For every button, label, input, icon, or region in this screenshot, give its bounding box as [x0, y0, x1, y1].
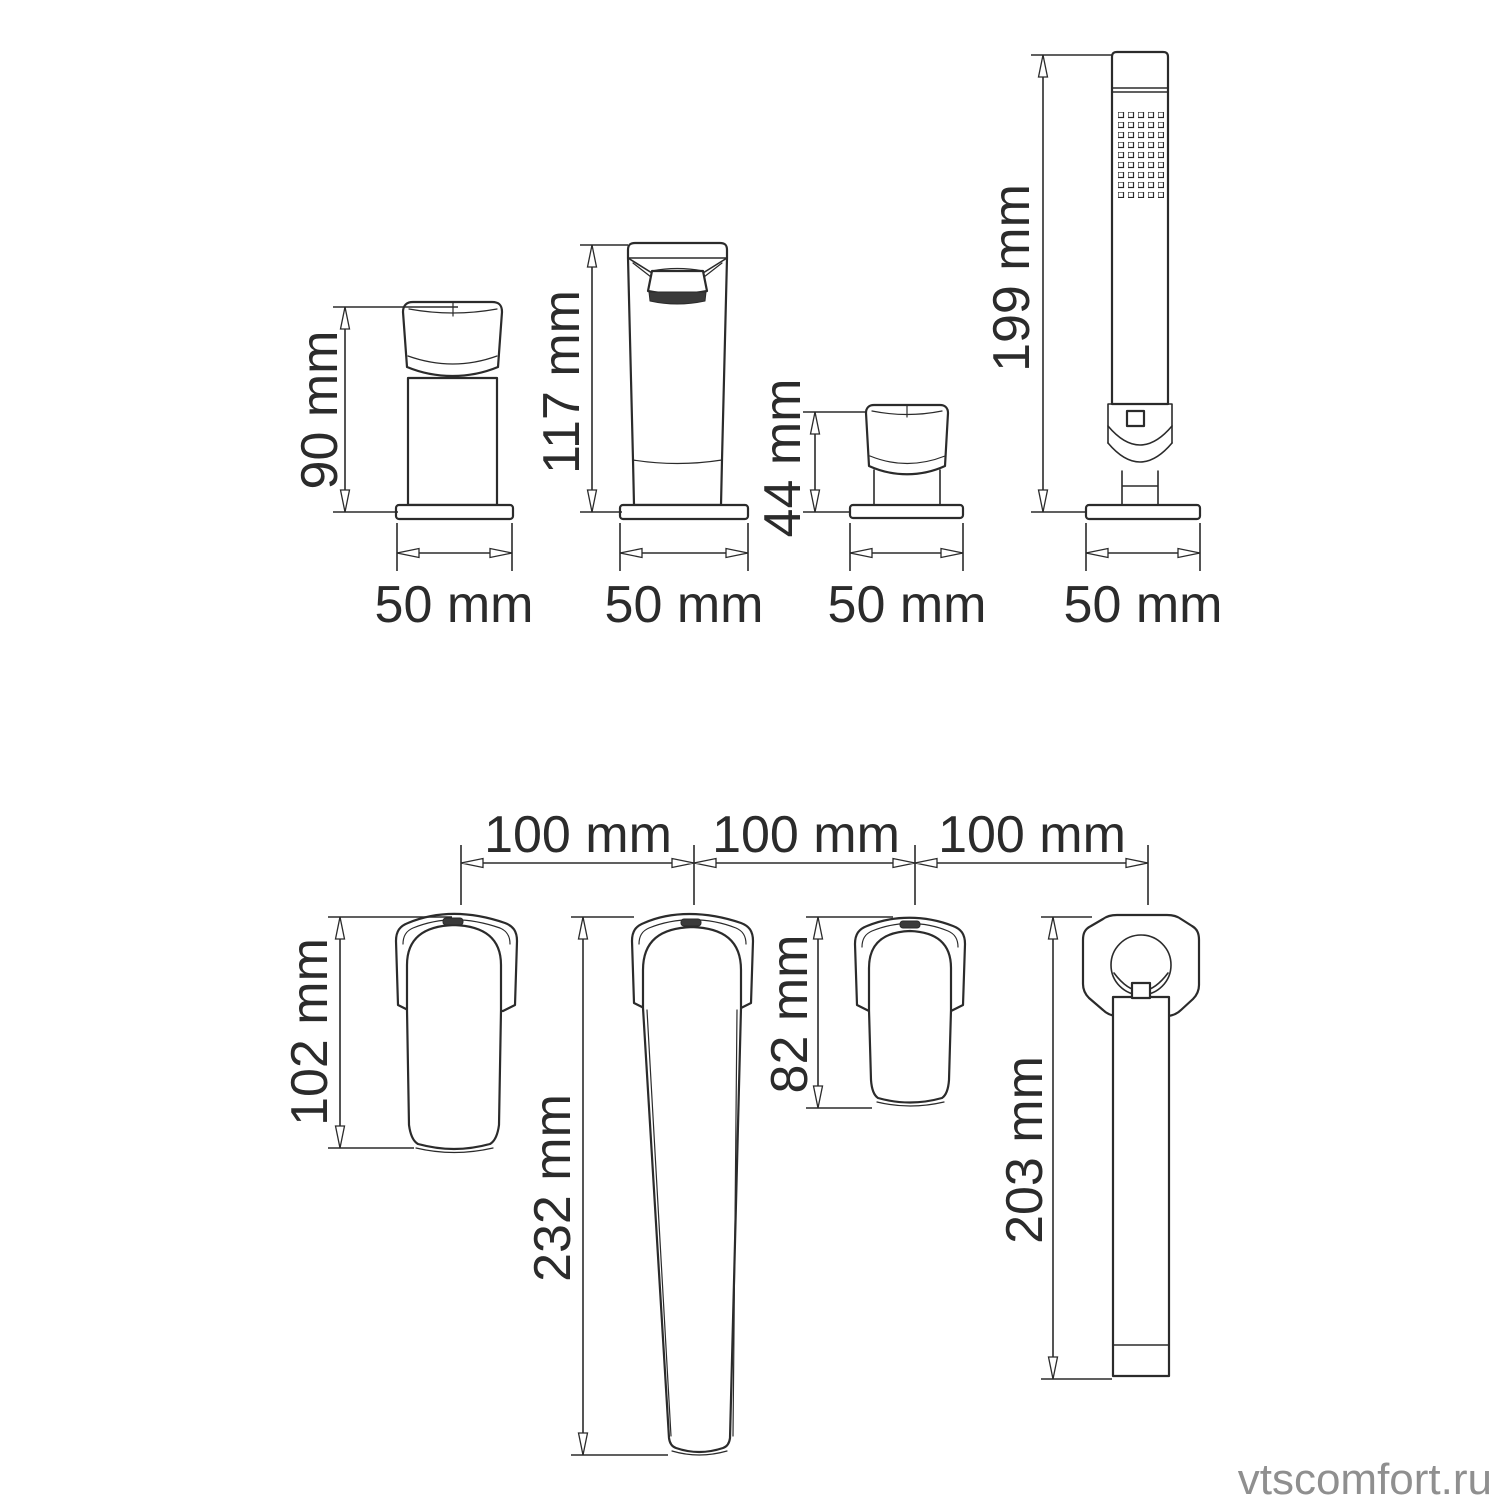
spout-aerator — [648, 271, 707, 294]
handle-top-notch — [443, 918, 463, 925]
dim-height-117: 117 mm — [533, 245, 628, 512]
shower-wand — [1112, 52, 1168, 404]
dim-label-width-1: 50 mm — [375, 576, 534, 634]
dim-label-length-4: 203 mm — [996, 1056, 1054, 1244]
hand-shower-top-view — [1083, 915, 1199, 1376]
spout-base-plate — [620, 505, 748, 519]
shower-top-clip — [1132, 983, 1150, 998]
shower-connector — [1122, 471, 1158, 505]
shower-holder-cup — [1108, 443, 1172, 462]
shower-clip — [1127, 411, 1144, 426]
dim-label-length-3: 82 mm — [761, 935, 819, 1094]
dim-label-width-3: 50 mm — [828, 576, 987, 634]
dim-spacing-row: 100 mm 100 mm 100 mm — [461, 806, 1148, 905]
dim-width-1: 50 mm — [375, 523, 534, 634]
handle-base-plate — [396, 505, 513, 519]
valve-top-body — [869, 931, 951, 1103]
faucet-dimension-drawing: 90 mm 117 mm 44 mm 199 mm 50 mm 50 mm 50… — [0, 0, 1500, 1500]
dim-width-3: 50 mm — [828, 523, 987, 634]
dim-label-length-1: 102 mm — [281, 938, 339, 1126]
handle-valve-side-view — [396, 302, 513, 519]
shower-holder-rim — [1108, 426, 1172, 445]
dim-label-spacing-3: 100 mm — [938, 806, 1126, 864]
dim-height-199: 199 mm — [983, 55, 1112, 512]
shower-base-plate — [1086, 505, 1200, 519]
dim-label-length-2: 232 mm — [524, 1094, 582, 1282]
dim-width-2: 50 mm — [605, 523, 764, 634]
handle-body — [408, 378, 497, 505]
valve-base-plate — [850, 505, 963, 518]
dim-label-height-4: 199 mm — [983, 184, 1041, 372]
dim-label-spacing-2: 100 mm — [712, 806, 900, 864]
shower-nozzle-grid — [1118, 112, 1164, 198]
small-valve-top-view — [855, 918, 965, 1106]
watermark: vtscomfort.ru — [1238, 1455, 1492, 1500]
shower-top-wand — [1113, 997, 1169, 1376]
spout-front-view — [620, 243, 748, 519]
hand-shower-side-view — [1086, 52, 1200, 519]
small-valve-side-view — [850, 405, 963, 518]
spout-top-notch — [681, 919, 701, 926]
dim-label-spacing-1: 100 mm — [484, 806, 672, 864]
spout-aerator-mesh — [649, 292, 706, 304]
dim-label-height-1: 90 mm — [291, 331, 349, 490]
dim-label-width-4: 50 mm — [1064, 576, 1223, 634]
dim-label-height-2: 117 mm — [533, 290, 591, 474]
handle-top-body — [407, 925, 501, 1149]
handle-valve-top-view — [396, 914, 517, 1153]
dim-label-height-3: 44 mm — [754, 379, 812, 538]
technical-drawing-page: 90 mm 117 mm 44 mm 199 mm 50 mm 50 mm 50… — [0, 0, 1500, 1500]
spout-top-view — [632, 914, 753, 1455]
dim-label-width-2: 50 mm — [605, 576, 764, 634]
dim-width-4: 50 mm — [1064, 523, 1223, 634]
valve-top-notch — [900, 921, 920, 928]
